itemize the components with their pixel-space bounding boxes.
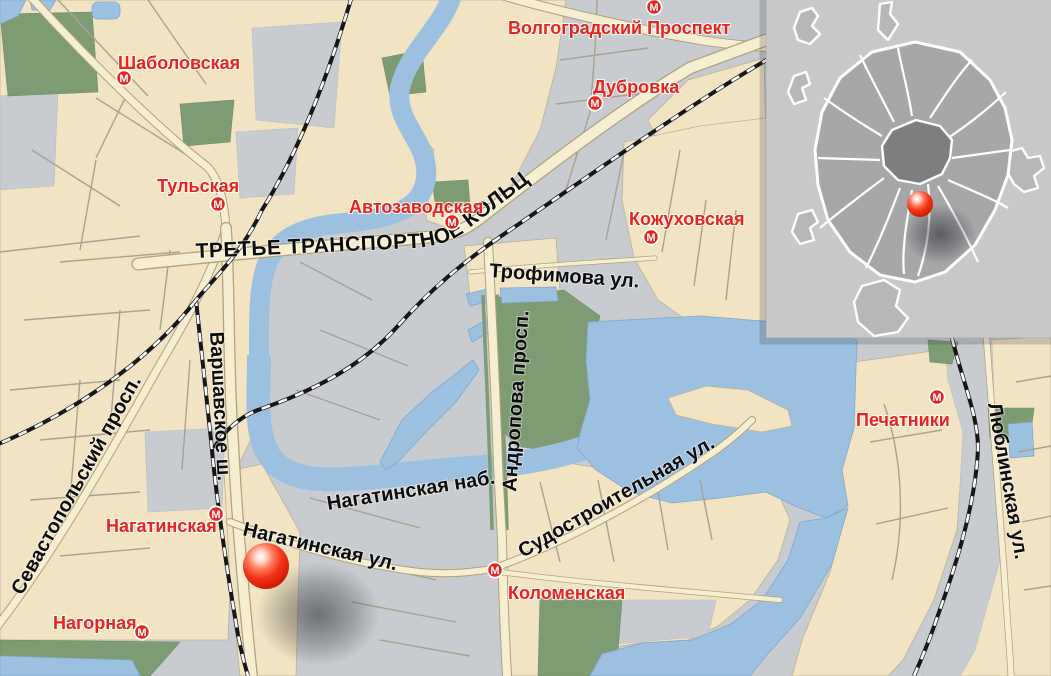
station-label-volgogradsky: Волгоградский Проспект (508, 18, 731, 38)
metro-icon-kolomenskaya[interactable]: М (487, 562, 502, 577)
map-canvas[interactable]: ТРЕТЬЕ ТРАНСПОРТНОЕ КОЛЬЦО Трофимова ул.… (0, 0, 1051, 676)
svg-text:М: М (490, 565, 499, 577)
svg-text:М: М (932, 392, 941, 404)
station-label-kolomenskaya: Коломенская (508, 583, 625, 603)
station-label-avtozavodskaya: Автозаводская (349, 197, 483, 217)
svg-text:М: М (119, 73, 128, 85)
metro-icon-avtozavodskaya[interactable]: М (444, 214, 459, 229)
station-label-kozhukhovskaya: Кожуховская (629, 209, 744, 229)
metro-icon-volgogradsky[interactable]: М (646, 0, 661, 15)
metro-icon-dubrovka[interactable]: М (587, 95, 602, 110)
station-label-pechatniki: Печатники (856, 410, 950, 430)
metro-icon-kozhukhovskaya[interactable]: М (643, 229, 658, 244)
svg-text:М: М (590, 98, 599, 110)
station-label-dubrovka: Дубровка (593, 77, 680, 97)
svg-text:М: М (211, 509, 220, 521)
inset-location-marker[interactable] (907, 191, 933, 217)
overview-inset[interactable] (763, 0, 1051, 341)
metro-icon-shabolovskaya[interactable]: М (116, 70, 131, 85)
station-label-shabolovskaya: Шаболовская (118, 53, 240, 73)
svg-text:М: М (649, 2, 658, 14)
station-label-nagatinskaya: Нагатинская (106, 516, 217, 536)
svg-text:М: М (213, 199, 222, 211)
svg-text:М: М (447, 217, 456, 229)
map-viewport[interactable]: ТРЕТЬЕ ТРАНСПОРТНОЕ КОЛЬЦО Трофимова ул.… (0, 0, 1051, 676)
station-label-nagornaya: Нагорная (53, 613, 137, 633)
metro-icon-nagatinskaya[interactable]: М (208, 506, 223, 521)
location-marker[interactable] (243, 543, 289, 589)
metro-icon-tulskaya[interactable]: М (210, 196, 225, 211)
station-label-tulskaya: Тульская (157, 176, 239, 196)
svg-text:М: М (137, 627, 146, 639)
metro-icon-pechatniki[interactable]: М (929, 389, 944, 404)
svg-text:М: М (646, 232, 655, 244)
inset-center-area (882, 120, 952, 184)
metro-icon-nagornaya[interactable]: М (134, 624, 149, 639)
